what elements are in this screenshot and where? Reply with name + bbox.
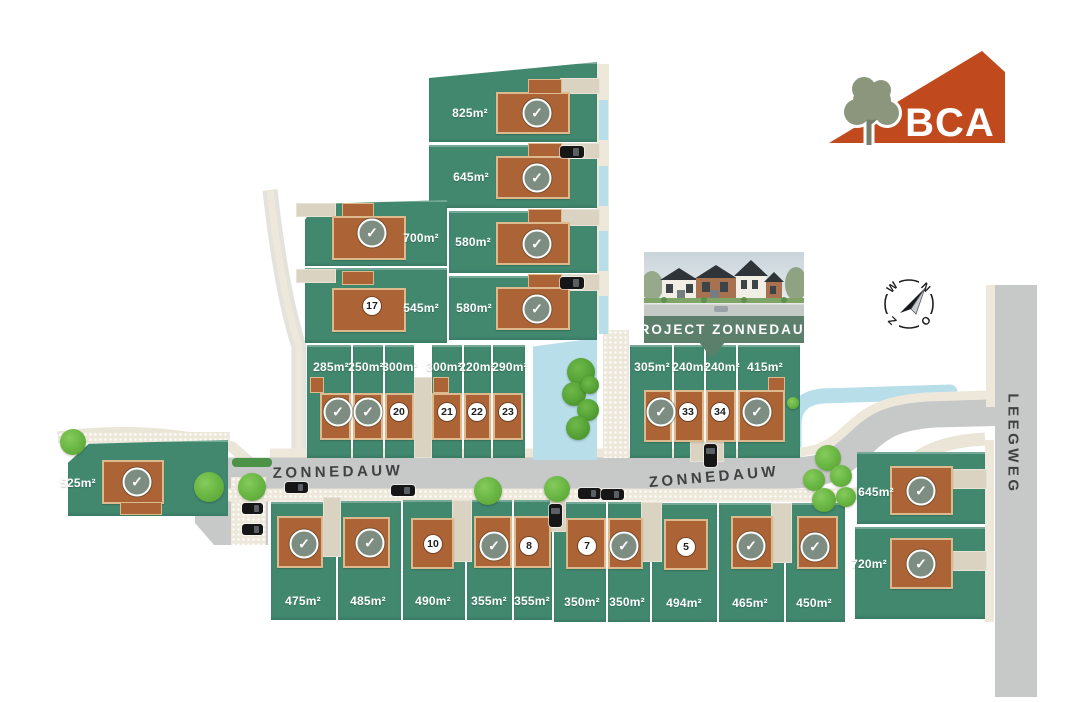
- tree-icon: [474, 477, 502, 505]
- tree-icon: [581, 376, 599, 394]
- plot-area-label: 240m²: [672, 360, 708, 374]
- plot-area-label: 240m²: [704, 360, 740, 374]
- tree-icon: [238, 473, 266, 501]
- garage-footprint: [528, 143, 562, 157]
- plot-area-label: 645m²: [453, 170, 489, 184]
- driveway: [323, 497, 341, 557]
- plot-area-label: 525m²: [60, 476, 96, 490]
- plot-number-badge: 17: [363, 297, 381, 315]
- driveway: [641, 502, 662, 562]
- car-windshield: [551, 508, 561, 514]
- garage-footprint: [310, 377, 324, 393]
- plot-number-badge: 5: [677, 538, 695, 556]
- sold-check-icon: ✓: [523, 230, 552, 259]
- plot-number-badge: 22: [468, 403, 486, 421]
- car-windshield: [298, 484, 304, 492]
- plot-area-label: 700m²: [403, 231, 439, 245]
- sold-check-icon: ✓: [523, 164, 552, 193]
- tree-icon: [787, 397, 799, 409]
- plot-area-label: 355m²: [514, 594, 550, 608]
- car-windshield: [254, 505, 259, 513]
- logo-text: BCA: [905, 101, 995, 145]
- car-icon: [549, 504, 562, 527]
- plot-area-label: 290m²: [492, 360, 528, 374]
- plot-area-label: 350m²: [609, 595, 645, 609]
- garage-footprint: [528, 274, 562, 288]
- tree-icon: [812, 488, 836, 512]
- garage-footprint: [528, 209, 562, 223]
- sold-check-icon: ✓: [801, 533, 830, 562]
- sold-check-icon: ✓: [907, 477, 936, 506]
- car-windshield: [614, 491, 620, 499]
- plot-area-label: 645m²: [858, 485, 894, 499]
- sold-check-icon: ✓: [480, 532, 509, 561]
- project-banner-label: PROJECT ZONNEDAUW: [629, 322, 820, 337]
- plot-area-label: 580m²: [456, 301, 492, 315]
- hedge: [232, 458, 272, 467]
- car-icon: [560, 146, 584, 158]
- sold-check-icon: ✓: [523, 99, 552, 128]
- plot-area-label: 350m²: [564, 595, 600, 609]
- compass-icon: N W Z O: [878, 273, 940, 335]
- car-windshield: [404, 487, 410, 495]
- car-icon: [285, 482, 308, 493]
- sold-check-icon: ✓: [737, 532, 766, 561]
- car-icon: [391, 485, 415, 496]
- car-windshield: [706, 448, 716, 454]
- car-icon: [560, 277, 584, 289]
- plot-area-label: 355m²: [471, 594, 507, 608]
- plot-number-badge: 20: [390, 403, 408, 421]
- plot-number-badge: 34: [711, 403, 729, 421]
- plot-number-badge: 33: [679, 403, 697, 421]
- water-ditch: [599, 296, 608, 334]
- driveway: [951, 551, 987, 571]
- tree-icon: [60, 429, 86, 455]
- garage-footprint: [342, 203, 374, 217]
- garage-footprint: [528, 79, 562, 94]
- paved-path: [603, 330, 629, 458]
- project-banner: PROJECT ZONNEDAUW: [644, 316, 804, 343]
- driveway: [771, 503, 792, 563]
- plot-area-label: 305m²: [634, 360, 670, 374]
- driveway: [414, 377, 432, 458]
- plot-area-label: 825m²: [452, 106, 488, 120]
- tree-icon: [566, 416, 590, 440]
- plot-area-label: 490m²: [415, 594, 451, 608]
- garage-footprint: [433, 377, 449, 393]
- garage-footprint: [768, 377, 785, 391]
- sold-check-icon: ✓: [354, 398, 383, 427]
- plot-number-badge: 8: [520, 537, 538, 555]
- water-ditch: [599, 231, 608, 271]
- driveway: [951, 469, 987, 489]
- tree-icon: [194, 472, 224, 502]
- car-icon: [601, 489, 624, 500]
- car-windshield: [573, 148, 579, 157]
- driveway: [296, 269, 336, 283]
- tree-icon: [830, 465, 852, 487]
- sold-check-icon: ✓: [610, 532, 639, 561]
- car-windshield: [573, 279, 579, 288]
- car-icon: [242, 503, 263, 514]
- sold-check-icon: ✓: [356, 529, 385, 558]
- garage-footprint: [342, 271, 374, 285]
- sold-check-icon: ✓: [743, 398, 772, 427]
- plot-area-label: 450m²: [796, 596, 832, 610]
- car-icon: [704, 444, 717, 467]
- site-plan: 825m²✓645m²✓580m²✓580m²✓700m²✓545m²17285…: [0, 0, 1080, 702]
- driveway: [452, 500, 472, 562]
- tree-icon: [836, 487, 856, 507]
- garage-footprint: [120, 502, 162, 515]
- plot-number-badge: 21: [438, 403, 456, 421]
- plot-area-label: 494m²: [666, 596, 702, 610]
- car-windshield: [591, 490, 597, 498]
- plot-area-label: 465m²: [732, 596, 768, 610]
- plot-area-label: 475m²: [285, 594, 321, 608]
- plot-area-label: 720m²: [851, 557, 887, 571]
- sold-check-icon: ✓: [358, 219, 387, 248]
- plot-area-label: 220m²: [459, 360, 495, 374]
- plot-area-label: 300m²: [426, 360, 462, 374]
- banner-pointer-icon: [699, 342, 725, 359]
- sold-check-icon: ✓: [123, 468, 152, 497]
- plot-area-label: 580m²: [455, 235, 491, 249]
- plot-number-badge: 10: [424, 535, 442, 553]
- sold-check-icon: ✓: [907, 550, 936, 579]
- sold-check-icon: ✓: [523, 295, 552, 324]
- project-photo: [644, 252, 804, 316]
- car-icon: [242, 524, 263, 535]
- plot-area-label: 250m²: [348, 360, 384, 374]
- sold-check-icon: ✓: [647, 398, 676, 427]
- car-windshield: [254, 526, 259, 534]
- water-ditch: [599, 100, 608, 140]
- driveway: [296, 203, 336, 217]
- plot-area-label: 285m²: [313, 360, 349, 374]
- sold-check-icon: ✓: [324, 398, 353, 427]
- street-label-zonnedauw-west: ZONNEDAUW: [273, 462, 404, 482]
- plot-area-label: 300m²: [382, 360, 418, 374]
- bca-logo: BCA: [826, 44, 1012, 162]
- water-ditch: [599, 166, 608, 206]
- plot-number-badge: 7: [578, 537, 596, 555]
- street-label-leegweg: LEEGWEG: [1005, 393, 1022, 494]
- sold-check-icon: ✓: [290, 530, 319, 559]
- plot-area-label: 485m²: [350, 594, 386, 608]
- plot-area-label: 415m²: [747, 360, 783, 374]
- plot-number-badge: 23: [499, 403, 517, 421]
- sidewalk-strip: [985, 440, 994, 622]
- car-icon: [578, 488, 601, 499]
- tree-icon: [544, 476, 570, 502]
- plot-area-label: 545m²: [403, 301, 439, 315]
